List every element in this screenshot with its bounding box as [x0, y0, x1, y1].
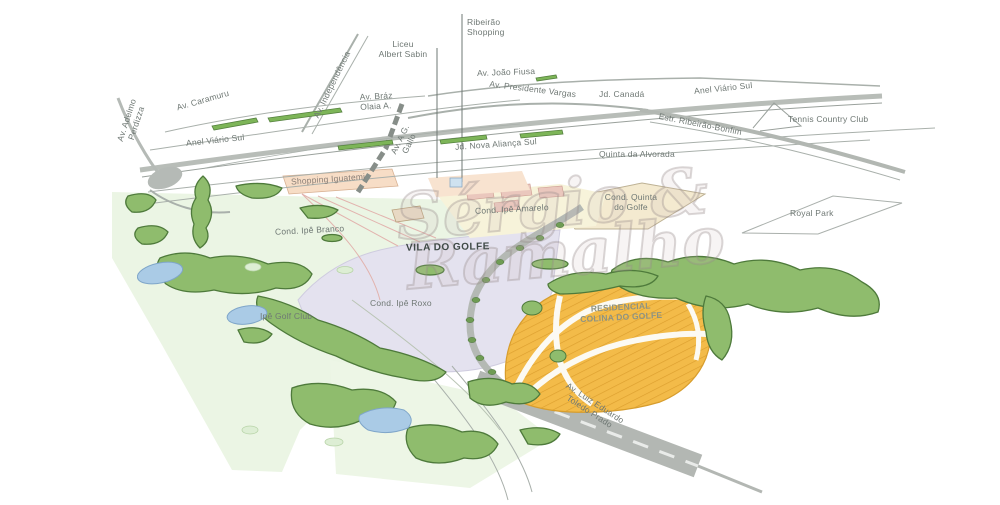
- place-label-ribeirao-shopping: Ribeirão Shopping: [467, 18, 505, 38]
- place-label-vila-do-golfe: VILA DO GOLFE: [406, 241, 490, 254]
- place-label-ipe-golf-club: Ipê Golf Club: [260, 312, 312, 322]
- leader-lines: [437, 14, 462, 182]
- ribeirao-shopping-marker: [450, 178, 462, 187]
- place-label-royal-park: Royal Park: [790, 209, 834, 219]
- road-label-av-joao-fiusa: Av. João Fiusa: [477, 67, 536, 79]
- road-label-av-braz-olaia: Av. Bráz Olaia A.: [360, 91, 394, 112]
- place-label-liceu-albert-sabin: Liceu Albert Sabin: [372, 40, 434, 60]
- place-label-quinta-da-alvorada: Quinta da Alvorada: [599, 150, 675, 160]
- place-label-tennis-country-club: Tennis Country Club: [788, 115, 868, 125]
- location-map: Sérgio & Ramalho Av. Adelmo Perdizza Av.…: [0, 0, 1000, 505]
- pond: [359, 408, 411, 433]
- place-label-jd-canada: Jd. Canadá: [599, 90, 644, 100]
- place-label-cond-ipe-roxo: Cond. Ipê Roxo: [370, 299, 432, 309]
- place-label-cond-quinta-do-golfe: Cond. Quinta do Golfe: [596, 193, 666, 213]
